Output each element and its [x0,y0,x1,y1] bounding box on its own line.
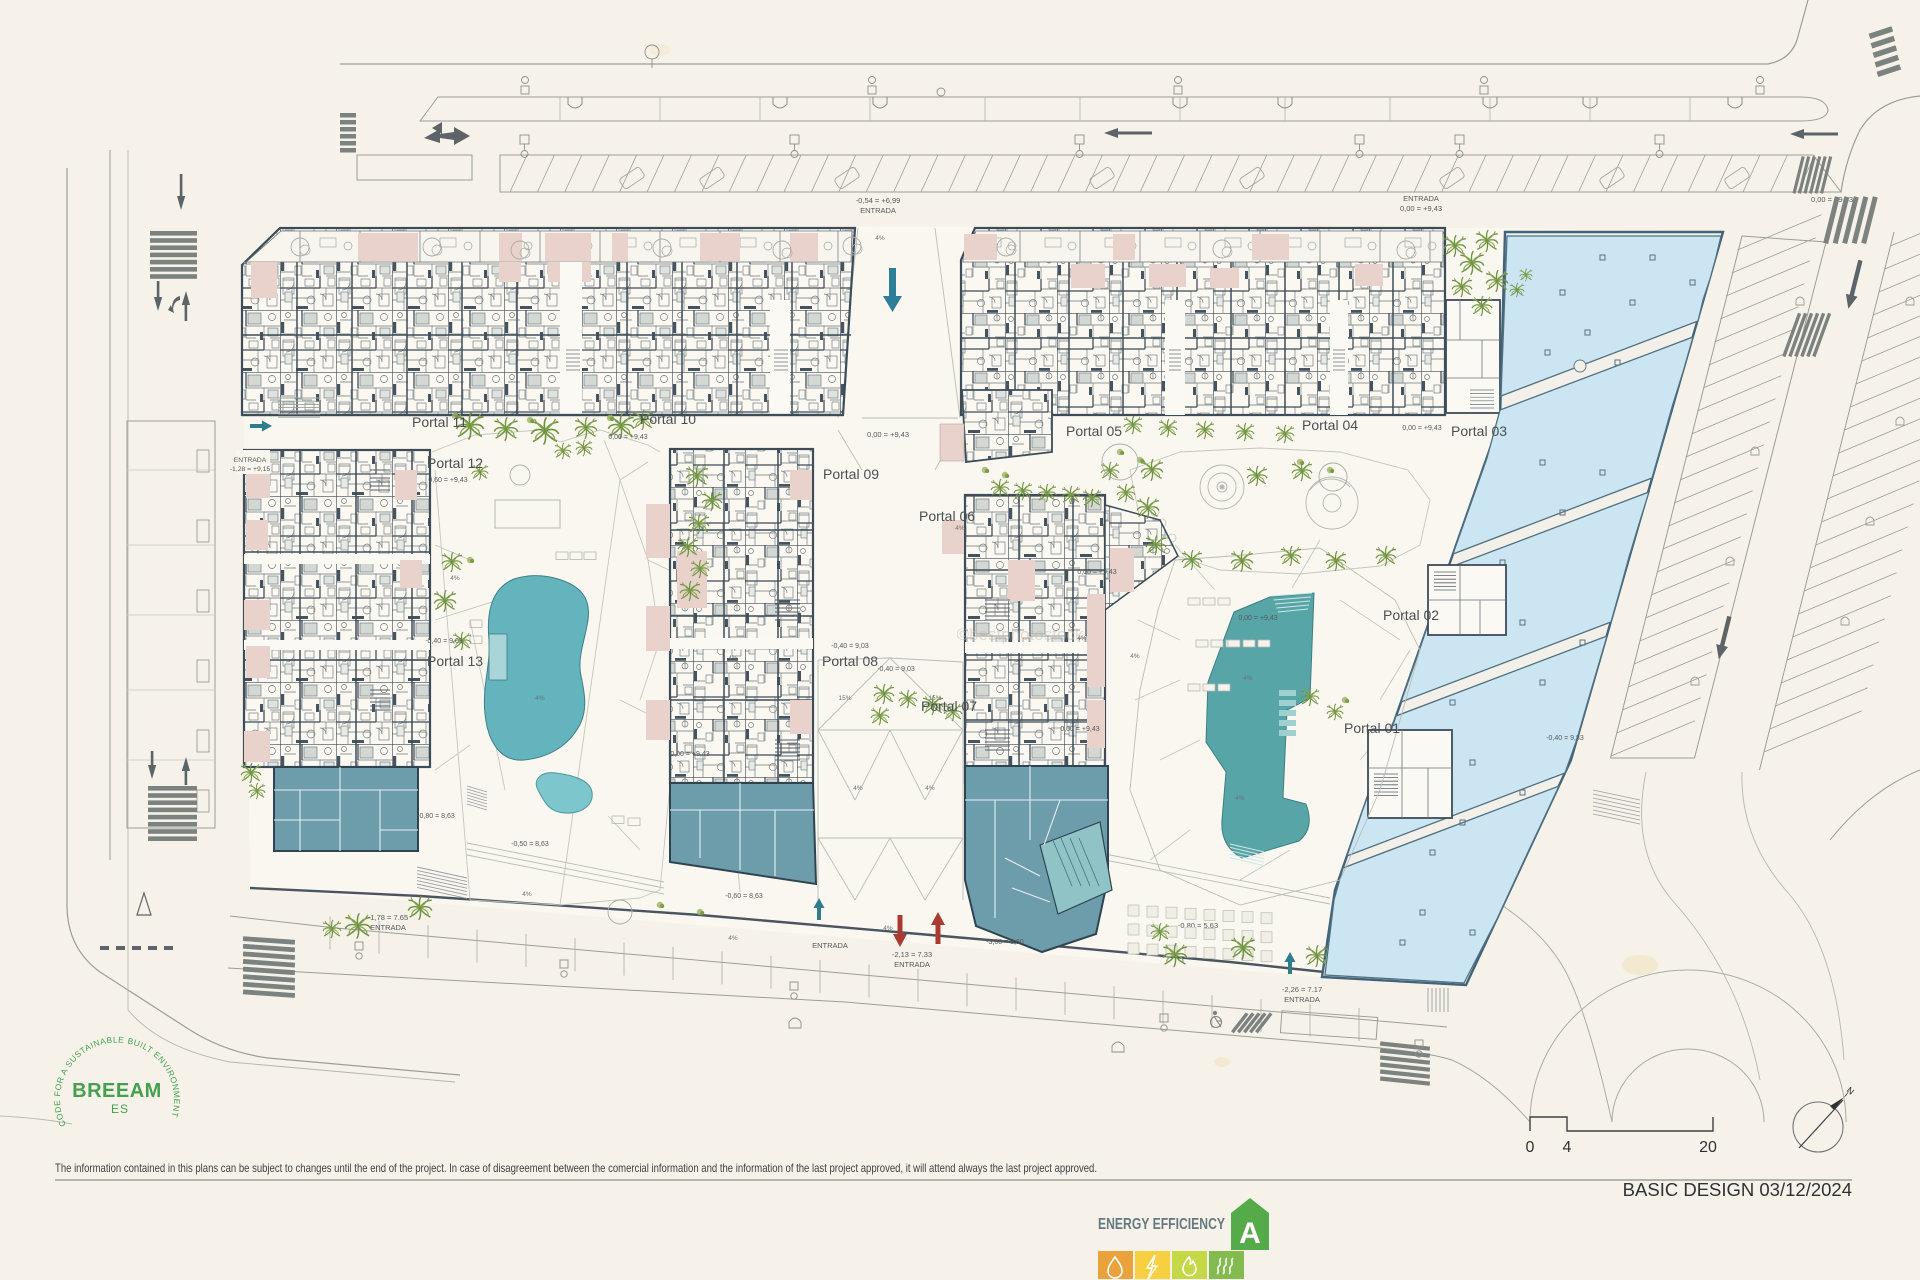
svg-text:0,00 = +9,43: 0,00 = +9,43 [1077,569,1116,576]
svg-text:0,00 = +9,43: 0,00 = +9,43 [1060,726,1099,733]
svg-text:-2,13 = 7.33: -2,13 = 7.33 [892,950,932,959]
svg-text:-1,78 = 7.65: -1,78 = 7.65 [368,913,408,922]
svg-text:©bestphotostock: ©bestphotostock [957,625,1084,644]
svg-text:4%: 4% [1130,653,1140,660]
svg-text:-0,40 = 9,83: -0,40 = 9,83 [1546,735,1584,742]
svg-text:4%: 4% [522,891,532,898]
svg-text:A: A [1239,1217,1261,1250]
svg-text:0,00 = +9,43: 0,00 = +9,43 [608,434,647,441]
svg-text:-0,40 = 9,03: -0,40 = 9,03 [877,666,915,673]
svg-text:Portal 05: Portal 05 [1066,423,1122,439]
svg-text:Portal 12: Portal 12 [427,455,483,471]
svg-text:Portal 04: Portal 04 [1302,417,1358,433]
svg-text:Portal 09: Portal 09 [823,466,879,482]
svg-text:0,00 = +9,43: 0,00 = +9,43 [867,430,909,439]
svg-text:-0,40 = 9,03: -0,40 = 9,03 [425,638,463,645]
svg-text:ENERGY EFFICIENCY: ENERGY EFFICIENCY [1098,1216,1226,1233]
svg-text:-0,60 = 8,63: -0,60 = 8,63 [725,893,763,900]
svg-text:ENTRADA: ENTRADA [370,923,406,932]
svg-text:4%: 4% [535,695,545,702]
svg-text:ENTRADA: ENTRADA [894,960,930,969]
svg-text:0,00 = +9,43: 0,00 = +9,43 [1238,615,1277,622]
svg-text:4%: 4% [1243,675,1253,682]
svg-text:-0,80 = 8,63: -0,80 = 8,63 [417,813,455,820]
svg-text:4%: 4% [450,575,460,582]
svg-text:ENTRADA: ENTRADA [812,941,848,950]
svg-text:Portal 06: Portal 06 [919,508,975,524]
svg-text:0,00 = +9,43: 0,00 = +9,43 [670,751,709,758]
svg-text:-3,60 = 8,60: -3,60 = 8,60 [986,939,1024,946]
svg-text:4: 4 [1563,1139,1572,1156]
svg-text:Portal 01: Portal 01 [1344,720,1400,736]
svg-text:ENTRADA: ENTRADA [860,206,896,215]
svg-text:0,00 = +9,43: 0,00 = +9,43 [1402,425,1441,432]
svg-text:-2,26 = 7.17: -2,26 = 7.17 [1282,985,1322,994]
svg-text:4%: 4% [955,525,965,532]
svg-text:ENTRADA: ENTRADA [234,457,267,464]
svg-text:Portal 10: Portal 10 [640,411,696,427]
svg-text:Portal 07: Portal 07 [921,698,977,714]
svg-text:15%: 15% [838,695,851,702]
svg-text:Portal 13: Portal 13 [427,653,483,669]
svg-text:Portal 03: Portal 03 [1451,423,1507,439]
svg-text:4%: 4% [728,935,738,942]
svg-text:ENTRADA: ENTRADA [1403,194,1439,203]
svg-text:Portal 11: Portal 11 [412,414,467,430]
svg-text:-0,50 = 8,63: -0,50 = 8,63 [511,841,549,848]
svg-text:ES: ES [111,1102,129,1116]
svg-text:4%: 4% [853,785,863,792]
svg-text:20: 20 [1699,1139,1717,1156]
svg-text:BASIC DESIGN 03/12/2024: BASIC DESIGN 03/12/2024 [1623,1179,1852,1200]
svg-text:4%: 4% [883,925,893,932]
svg-text:-1,28 = +9,15: -1,28 = +9,15 [230,466,271,473]
svg-text:ENTRADA: ENTRADA [1284,995,1320,1004]
svg-text:-0,40 = 9,03: -0,40 = 9,03 [831,643,869,650]
svg-text:The information contained in t: The information contained in this plans … [55,1162,1097,1175]
svg-text:4%: 4% [925,785,935,792]
svg-text:BREEAM: BREEAM [72,1080,162,1102]
svg-text:4%: 4% [875,235,885,242]
svg-text:0,00 = +9,43: 0,00 = +9,43 [1400,204,1442,213]
svg-text:4%: 4% [1235,795,1245,802]
svg-text:4%: 4% [728,655,738,662]
svg-text:0,60 = +9,43: 0,60 = +9,43 [428,477,467,484]
svg-text:Portal 08: Portal 08 [822,653,878,669]
svg-text:-0,54 = +6,99: -0,54 = +6,99 [856,196,901,205]
svg-text:0: 0 [1526,1139,1535,1156]
svg-text:Portal 02: Portal 02 [1383,607,1439,623]
